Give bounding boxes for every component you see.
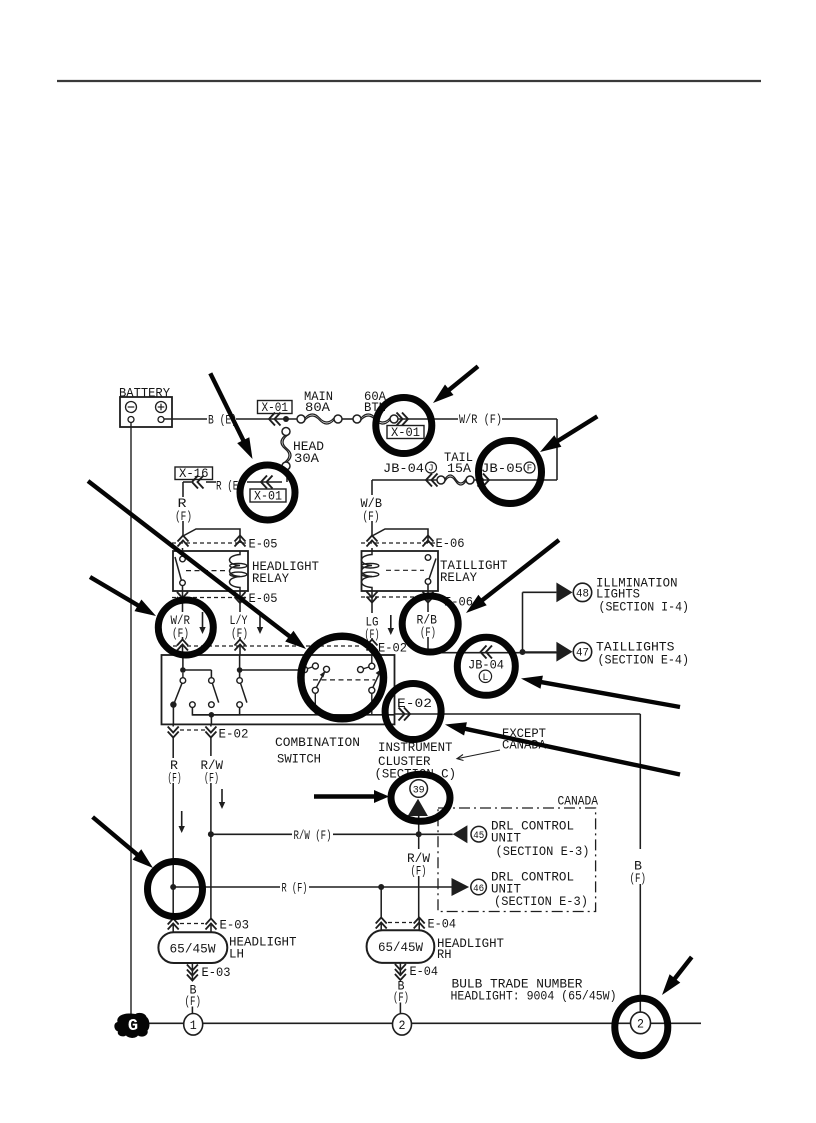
svg-text:L/Y: L/Y [230,614,248,628]
svg-text:2: 2 [637,1017,644,1032]
svg-text:(F): (F) [185,995,202,1009]
svg-text:LH: LH [229,947,244,962]
svg-text:30A: 30A [294,451,319,466]
svg-text:JB-04: JB-04 [383,462,424,476]
svg-text:47: 47 [576,648,589,660]
svg-text:R: R [178,497,188,511]
svg-text:CANADA: CANADA [558,795,599,809]
svg-text:BATTERY: BATTERY [119,386,170,401]
svg-text:46: 46 [473,883,484,895]
svg-text:JB-05: JB-05 [481,462,523,476]
svg-text:E-05: E-05 [249,592,278,606]
svg-text:(F): (F) [420,626,436,640]
svg-text:(SECTION E-3): (SECTION E-3) [494,894,588,909]
svg-text:SWITCH: SWITCH [277,752,321,767]
svg-text:R (F): R (F) [282,882,308,896]
svg-text:E-04: E-04 [410,965,439,979]
svg-text:E-03: E-03 [202,966,231,980]
svg-text:G: G [128,1017,138,1036]
svg-text:E-05: E-05 [249,538,278,552]
svg-text:15A: 15A [447,461,471,476]
svg-text:F: F [527,464,532,474]
svg-text:J: J [428,464,433,474]
svg-text:E-02: E-02 [219,728,249,742]
svg-text:L: L [482,673,488,684]
svg-text:(F): (F) [363,510,380,524]
svg-text:(SECTION E-3): (SECTION E-3) [496,844,590,859]
svg-text:(F): (F) [168,772,182,786]
svg-text:80A: 80A [305,400,330,415]
svg-text:45: 45 [473,830,484,842]
svg-text:X-01: X-01 [254,489,282,503]
svg-text:(F): (F) [630,872,647,886]
svg-text:(SECTION E-4): (SECTION E-4) [598,653,690,668]
svg-text:2: 2 [399,1018,406,1033]
svg-text:E-06: E-06 [436,537,465,551]
svg-text:RELAY: RELAY [252,571,289,586]
svg-text:RH: RH [437,947,452,962]
svg-text:(SECTION I-4): (SECTION I-4) [599,600,690,615]
svg-text:39: 39 [413,784,425,796]
svg-text:W/B: W/B [361,497,383,511]
svg-text:1: 1 [190,1018,197,1033]
svg-text:RELAY: RELAY [440,570,477,585]
svg-text:E-02: E-02 [397,697,432,711]
svg-text:X-01: X-01 [262,401,289,415]
svg-text:E-04: E-04 [428,918,457,932]
svg-text:65/45W: 65/45W [378,940,423,955]
svg-text:(F): (F) [172,627,189,641]
svg-text:X-01: X-01 [391,426,420,440]
svg-text:48: 48 [576,588,589,600]
svg-text:65/45W: 65/45W [170,942,216,957]
svg-text:W/R (F): W/R (F) [459,413,502,427]
svg-text:E-02: E-02 [378,642,407,656]
svg-text:(F): (F) [393,991,409,1005]
svg-text:(F): (F) [411,865,427,879]
svg-text:COMBINATION: COMBINATION [275,735,360,750]
svg-text:E-03: E-03 [220,919,250,933]
svg-text:X-16: X-16 [179,467,209,481]
svg-text:R/W (F): R/W (F) [294,829,332,843]
svg-text:W/R: W/R [171,614,191,628]
svg-text:HEADLIGHT: 9004 (65/45W): HEADLIGHT: 9004 (65/45W) [451,989,617,1004]
svg-text:(F): (F) [204,772,219,786]
